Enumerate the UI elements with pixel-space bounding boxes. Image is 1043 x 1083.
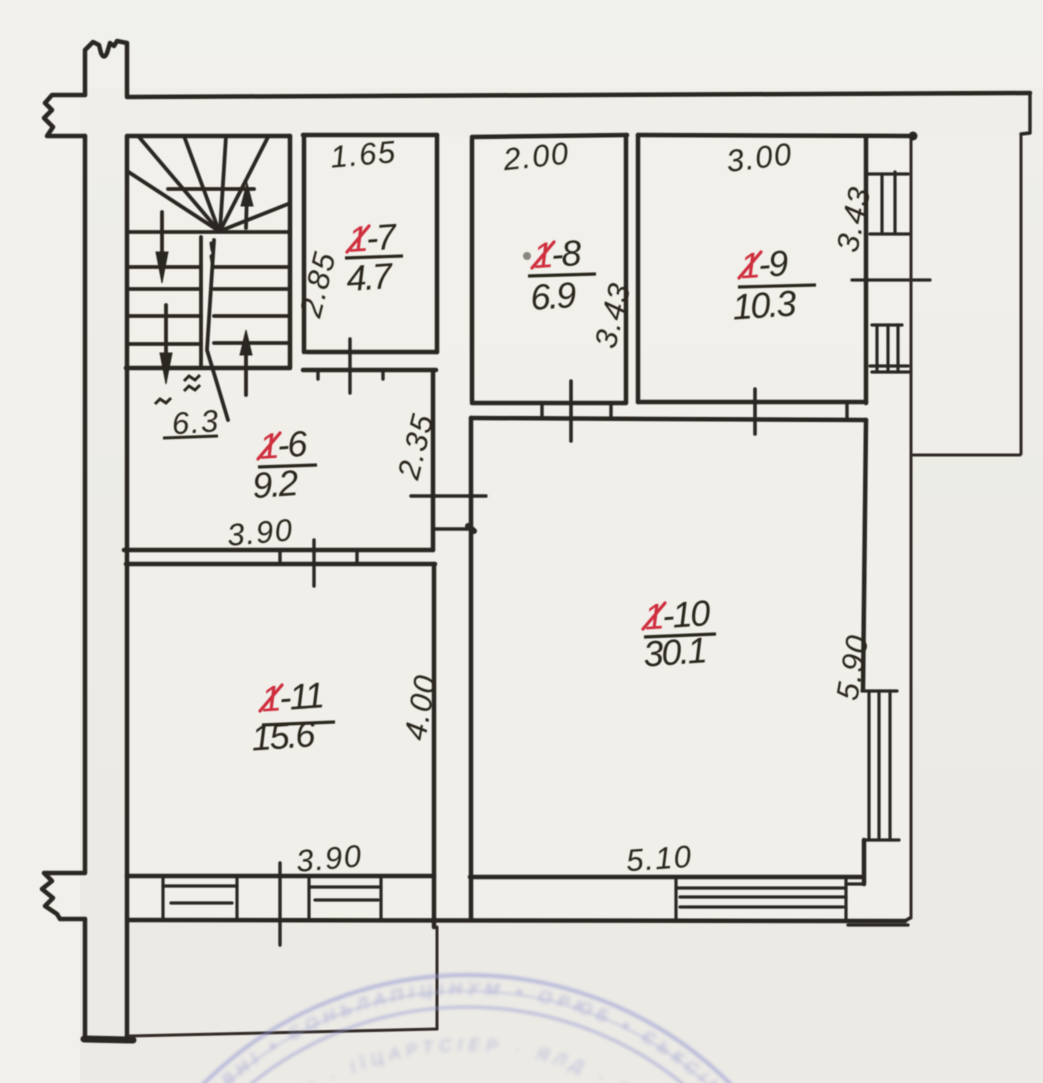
svg-text:1-7: 1-7 — [347, 216, 400, 260]
svg-text:1-6: 1-6 — [258, 423, 310, 467]
svg-text:3.90: 3.90 — [226, 512, 295, 553]
svg-text:4.7: 4.7 — [345, 255, 396, 299]
svg-text:5.10: 5.10 — [625, 839, 694, 879]
svg-text:15.6: 15.6 — [250, 713, 318, 758]
svg-text:9.2: 9.2 — [251, 462, 300, 506]
svg-text:1-9: 1-9 — [739, 242, 790, 286]
svg-text:1-11: 1-11 — [260, 674, 324, 719]
svg-text:10.3: 10.3 — [731, 282, 798, 327]
svg-text:1-8: 1-8 — [532, 232, 583, 276]
svg-text:2.00: 2.00 — [501, 135, 572, 177]
svg-text:30.1: 30.1 — [642, 629, 707, 674]
svg-text:1.65: 1.65 — [329, 134, 398, 175]
svg-text:3.90: 3.90 — [295, 838, 364, 879]
svg-text:6.9: 6.9 — [529, 274, 578, 318]
